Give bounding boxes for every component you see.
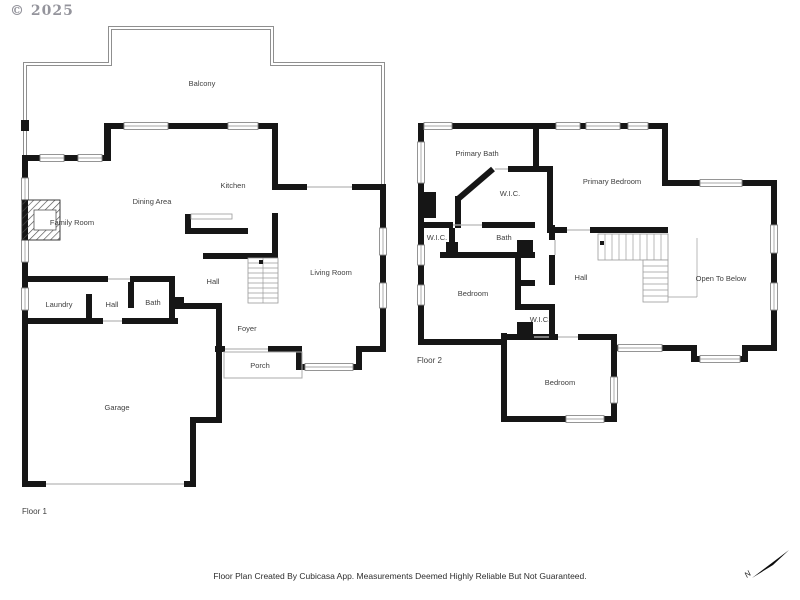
- room-label-bedroom-west: Bedroom: [458, 289, 488, 298]
- room-label-wic-center: W.I.C.: [530, 315, 550, 324]
- room-label-living-room: Living Room: [310, 268, 352, 277]
- room-label-family-room: Family Room: [50, 218, 94, 227]
- floor1-walls: [22, 123, 386, 487]
- floor2-title: Floor 2: [417, 356, 442, 365]
- room-label-hall-west: Hall: [106, 300, 119, 309]
- room-label-open-to-below: Open To Below: [696, 274, 747, 283]
- room-label-hall-f2: Hall: [575, 273, 588, 282]
- room-label-dining-area: Dining Area: [133, 197, 173, 206]
- floorplan-canvas: © 2025: [0, 0, 800, 600]
- balcony-railing: [21, 28, 383, 185]
- room-label-foyer: Foyer: [237, 324, 257, 333]
- room-label-laundry: Laundry: [45, 300, 72, 309]
- room-label-hall-center: Hall: [207, 277, 220, 286]
- room-label-porch: Porch: [250, 361, 270, 370]
- floor2-windows: [418, 123, 778, 423]
- room-label-bath-f1: Bath: [145, 298, 160, 307]
- floor1-staircase: [248, 258, 278, 303]
- diagonal-wall: [458, 169, 493, 199]
- room-label-bath-f2: Bath: [496, 233, 511, 242]
- room-label-wic-primary: W.I.C.: [500, 189, 520, 198]
- room-label-primary-bath: Primary Bath: [455, 149, 498, 158]
- floor1-plan: Balcony Kitchen Dining Area Family Room …: [21, 28, 387, 516]
- room-label-balcony: Balcony: [189, 79, 216, 88]
- room-label-wic-west: W.I.C.: [427, 233, 447, 242]
- room-label-garage: Garage: [104, 403, 129, 412]
- floorplan-drawing: Balcony Kitchen Dining Area Family Room …: [0, 0, 800, 600]
- disclaimer-text: Floor Plan Created By Cubicasa App. Meas…: [0, 571, 800, 581]
- floor2-walls: [418, 123, 777, 422]
- kitchen-counter: [191, 214, 232, 219]
- room-label-primary-bedroom: Primary Bedroom: [583, 177, 641, 186]
- room-label-kitchen: Kitchen: [220, 181, 245, 190]
- room-label-bedroom-south: Bedroom: [545, 378, 575, 387]
- floor1-title: Floor 1: [22, 507, 47, 516]
- floor2-staircase: [598, 234, 697, 302]
- floor2-plan: Primary Bath W.I.C. Primary Bedroom W.I.…: [417, 123, 778, 423]
